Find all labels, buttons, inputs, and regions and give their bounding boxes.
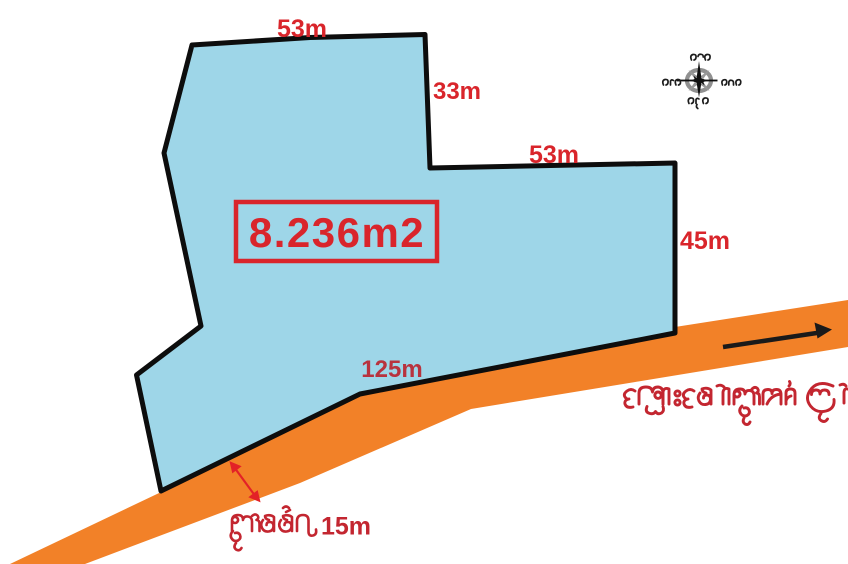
svg-text:53m: 53m [277,15,327,43]
svg-text:45m: 45m [680,227,730,255]
svg-text:33m: 33m [433,78,481,105]
svg-text:8.236m2: 8.236m2 [249,209,425,256]
svg-text:15m: 15m [321,513,371,541]
svg-text:125m: 125m [361,356,422,383]
svg-text:53m: 53m [529,141,579,169]
